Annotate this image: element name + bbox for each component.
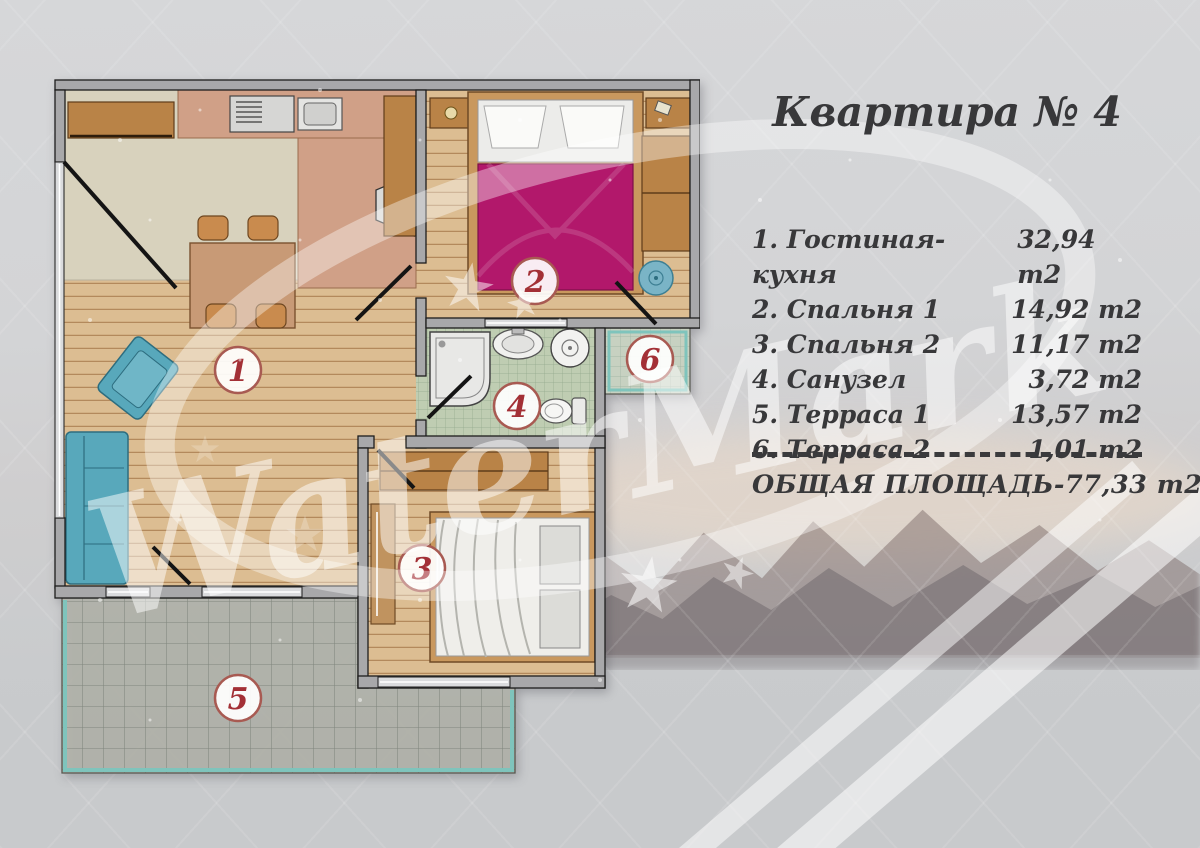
room-number-6: 6 xyxy=(627,336,673,382)
room-number-label: 2 xyxy=(524,265,546,300)
room-number-2: 2 xyxy=(512,258,558,304)
legend-room-area: 32,94 m2 xyxy=(1017,222,1142,292)
page-title: Квартира № 4 xyxy=(752,88,1142,136)
legend-row: 6. Терраса 2 1,01 m2 xyxy=(752,432,1142,467)
pillow xyxy=(484,106,546,148)
room-number-label: 6 xyxy=(640,343,661,378)
room-number-1: 1 xyxy=(215,347,261,393)
room-bedroom-1 xyxy=(426,90,690,328)
legend-room-label: 4. Санузел xyxy=(752,362,906,397)
toilet xyxy=(540,398,586,424)
kitchen-counter xyxy=(178,90,416,138)
chair xyxy=(206,304,236,328)
legend-room-label: 1. Гостиная-кухня xyxy=(752,222,1017,292)
legend-room-label: 3. Спальня 2 xyxy=(752,327,940,362)
bed-single xyxy=(430,512,595,662)
legend-room-label: 2. Спальня 1 xyxy=(752,292,940,327)
room-number-label: 1 xyxy=(228,354,249,389)
legend-room-area: 3,72 m2 xyxy=(1029,362,1142,397)
floor-plan: 1 2 3 4 5 6 xyxy=(40,76,700,796)
legend-row: 5. Терраса 1 13,57 m2 xyxy=(752,397,1142,432)
pillow xyxy=(560,106,624,148)
legend-row: 3. Спальня 2 11,17 m2 xyxy=(752,327,1142,362)
kitchen-sink xyxy=(298,98,342,130)
room-number-4: 4 xyxy=(494,383,540,429)
legend-row: 4. Санузел 3,72 m2 xyxy=(752,362,1142,397)
room-number-5: 5 xyxy=(215,675,261,721)
legend-row: 2. Спальня 1 14,92 m2 xyxy=(752,292,1142,327)
entry-closet xyxy=(68,102,174,138)
stove xyxy=(230,96,294,132)
chair xyxy=(198,216,228,240)
legend-room-area: 14,92 m2 xyxy=(1011,292,1142,327)
stool xyxy=(639,261,673,295)
legend-room-area: 13,57 m2 xyxy=(1011,397,1142,432)
bed-double xyxy=(468,92,643,294)
pillow xyxy=(540,526,580,584)
legend-room-label: 6. Терраса 2 xyxy=(752,432,930,467)
shower xyxy=(430,332,490,406)
room-number-label: 4 xyxy=(507,390,528,425)
room-number-3: 3 xyxy=(399,545,445,591)
room-number-label: 5 xyxy=(228,682,249,717)
washing-machine xyxy=(551,329,589,367)
sofa xyxy=(66,432,128,584)
chair xyxy=(256,304,286,328)
legend-row: 1. Гостиная-кухня 32,94 m2 xyxy=(752,222,1142,292)
dashed-divider xyxy=(752,452,1142,457)
info-panel: Квартира № 4 1. Гостиная-кухня 32,94 m2 … xyxy=(752,0,1142,848)
pillow xyxy=(540,590,580,648)
desk xyxy=(371,504,395,624)
page: 1 2 3 4 5 6 xyxy=(0,0,1200,848)
total-area: ОБЩАЯ ПЛОЩАДЬ-77,33 m2 xyxy=(752,470,1142,500)
legend-room-label: 5. Терраса 1 xyxy=(752,397,930,432)
bathroom-sink xyxy=(493,328,543,359)
legend-room-area: 11,17 m2 xyxy=(1011,327,1142,362)
legend-room-area: 1,01 m2 xyxy=(1029,432,1142,467)
chair xyxy=(248,216,278,240)
cabinet xyxy=(384,96,416,236)
room-legend: 1. Гостиная-кухня 32,94 m2 2. Спальня 1 … xyxy=(752,222,1142,467)
room-number-label: 3 xyxy=(412,552,433,587)
